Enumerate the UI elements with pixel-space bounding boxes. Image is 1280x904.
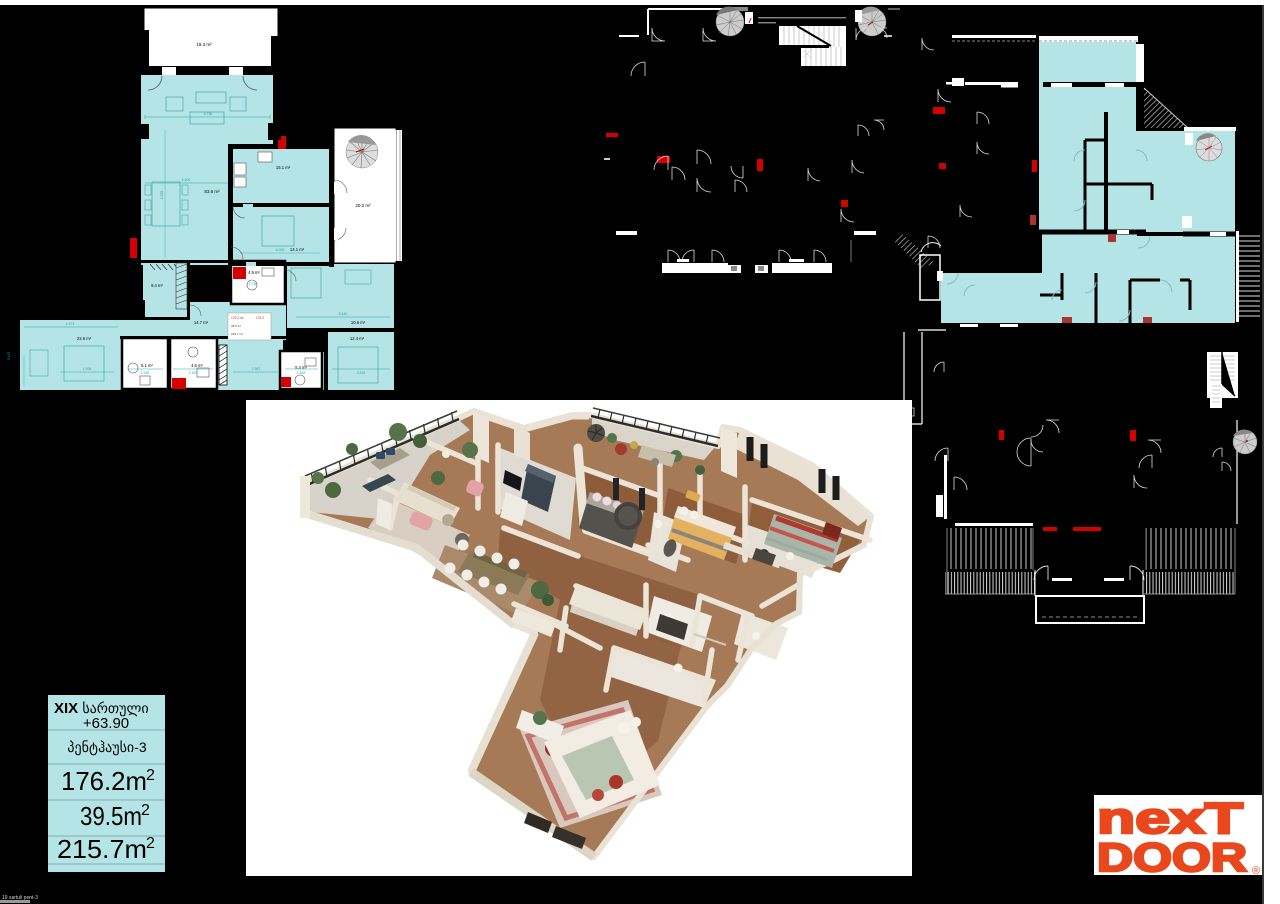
svg-text:3.419: 3.419 [7,352,11,361]
svg-text:39.5 m²: 39.5 m² [231,324,241,328]
svg-text:10.6 m²: 10.6 m² [351,320,366,325]
svg-text:4.025: 4.025 [160,191,164,200]
svg-text:4.271: 4.271 [66,322,75,326]
svg-text:2.187: 2.187 [189,371,198,375]
svg-text:2.967: 2.967 [252,367,261,371]
svg-text:4.6 m²: 4.6 m² [191,363,203,368]
svg-text:2.736: 2.736 [249,282,258,286]
svg-text:23.6 m²: 23.6 m² [77,336,92,341]
svg-text:DOOR: DOOR [1097,836,1247,880]
svg-text:20.2 m²: 20.2 m² [355,203,371,208]
svg-text:®: ® [1252,865,1260,877]
svg-text:2: 2 [146,767,155,784]
svg-text:12.4 m²: 12.4 m² [350,336,365,341]
svg-text:2: 2 [146,835,155,852]
svg-text:2.296: 2.296 [141,371,150,375]
svg-text:14.7 m²: 14.7 m² [194,320,209,325]
svg-text:4.9 m²: 4.9 m² [248,270,260,275]
svg-text:1.998: 1.998 [83,367,92,371]
svg-text:4.400: 4.400 [182,178,191,182]
svg-text:176.2: 176.2 [256,316,264,320]
svg-text:9.4 m²: 9.4 m² [151,283,163,288]
svg-text:215.7m: 215.7m [57,834,147,864]
svg-text:2: 2 [141,802,150,819]
svg-text:176.2m: 176.2m [61,766,147,796]
svg-text:15.1 m²: 15.1 m² [276,165,291,170]
svg-text:4.000: 4.000 [276,248,285,252]
svg-text:5.1 m²: 5.1 m² [141,363,153,368]
svg-text:39.5m: 39.5m [80,801,142,831]
svg-text:5.440: 5.440 [339,312,348,316]
svg-text:176.2 m²: 176.2 m² [231,316,244,320]
svg-text:6.736: 6.736 [204,112,213,116]
svg-text:83.6 m²: 83.6 m² [204,189,220,194]
svg-text:215.7 m²: 215.7 m² [231,332,243,336]
svg-text:+63.90: +63.90 [83,715,129,732]
svg-text:პენტჰაუსი-3: პენტჰაუსი-3 [67,739,146,756]
svg-text:2.519: 2.519 [357,371,366,375]
svg-text:2.182: 2.182 [297,371,306,375]
svg-text:19.3 m²: 19.3 m² [196,42,212,47]
svg-text:14.1 m²: 14.1 m² [290,247,305,252]
